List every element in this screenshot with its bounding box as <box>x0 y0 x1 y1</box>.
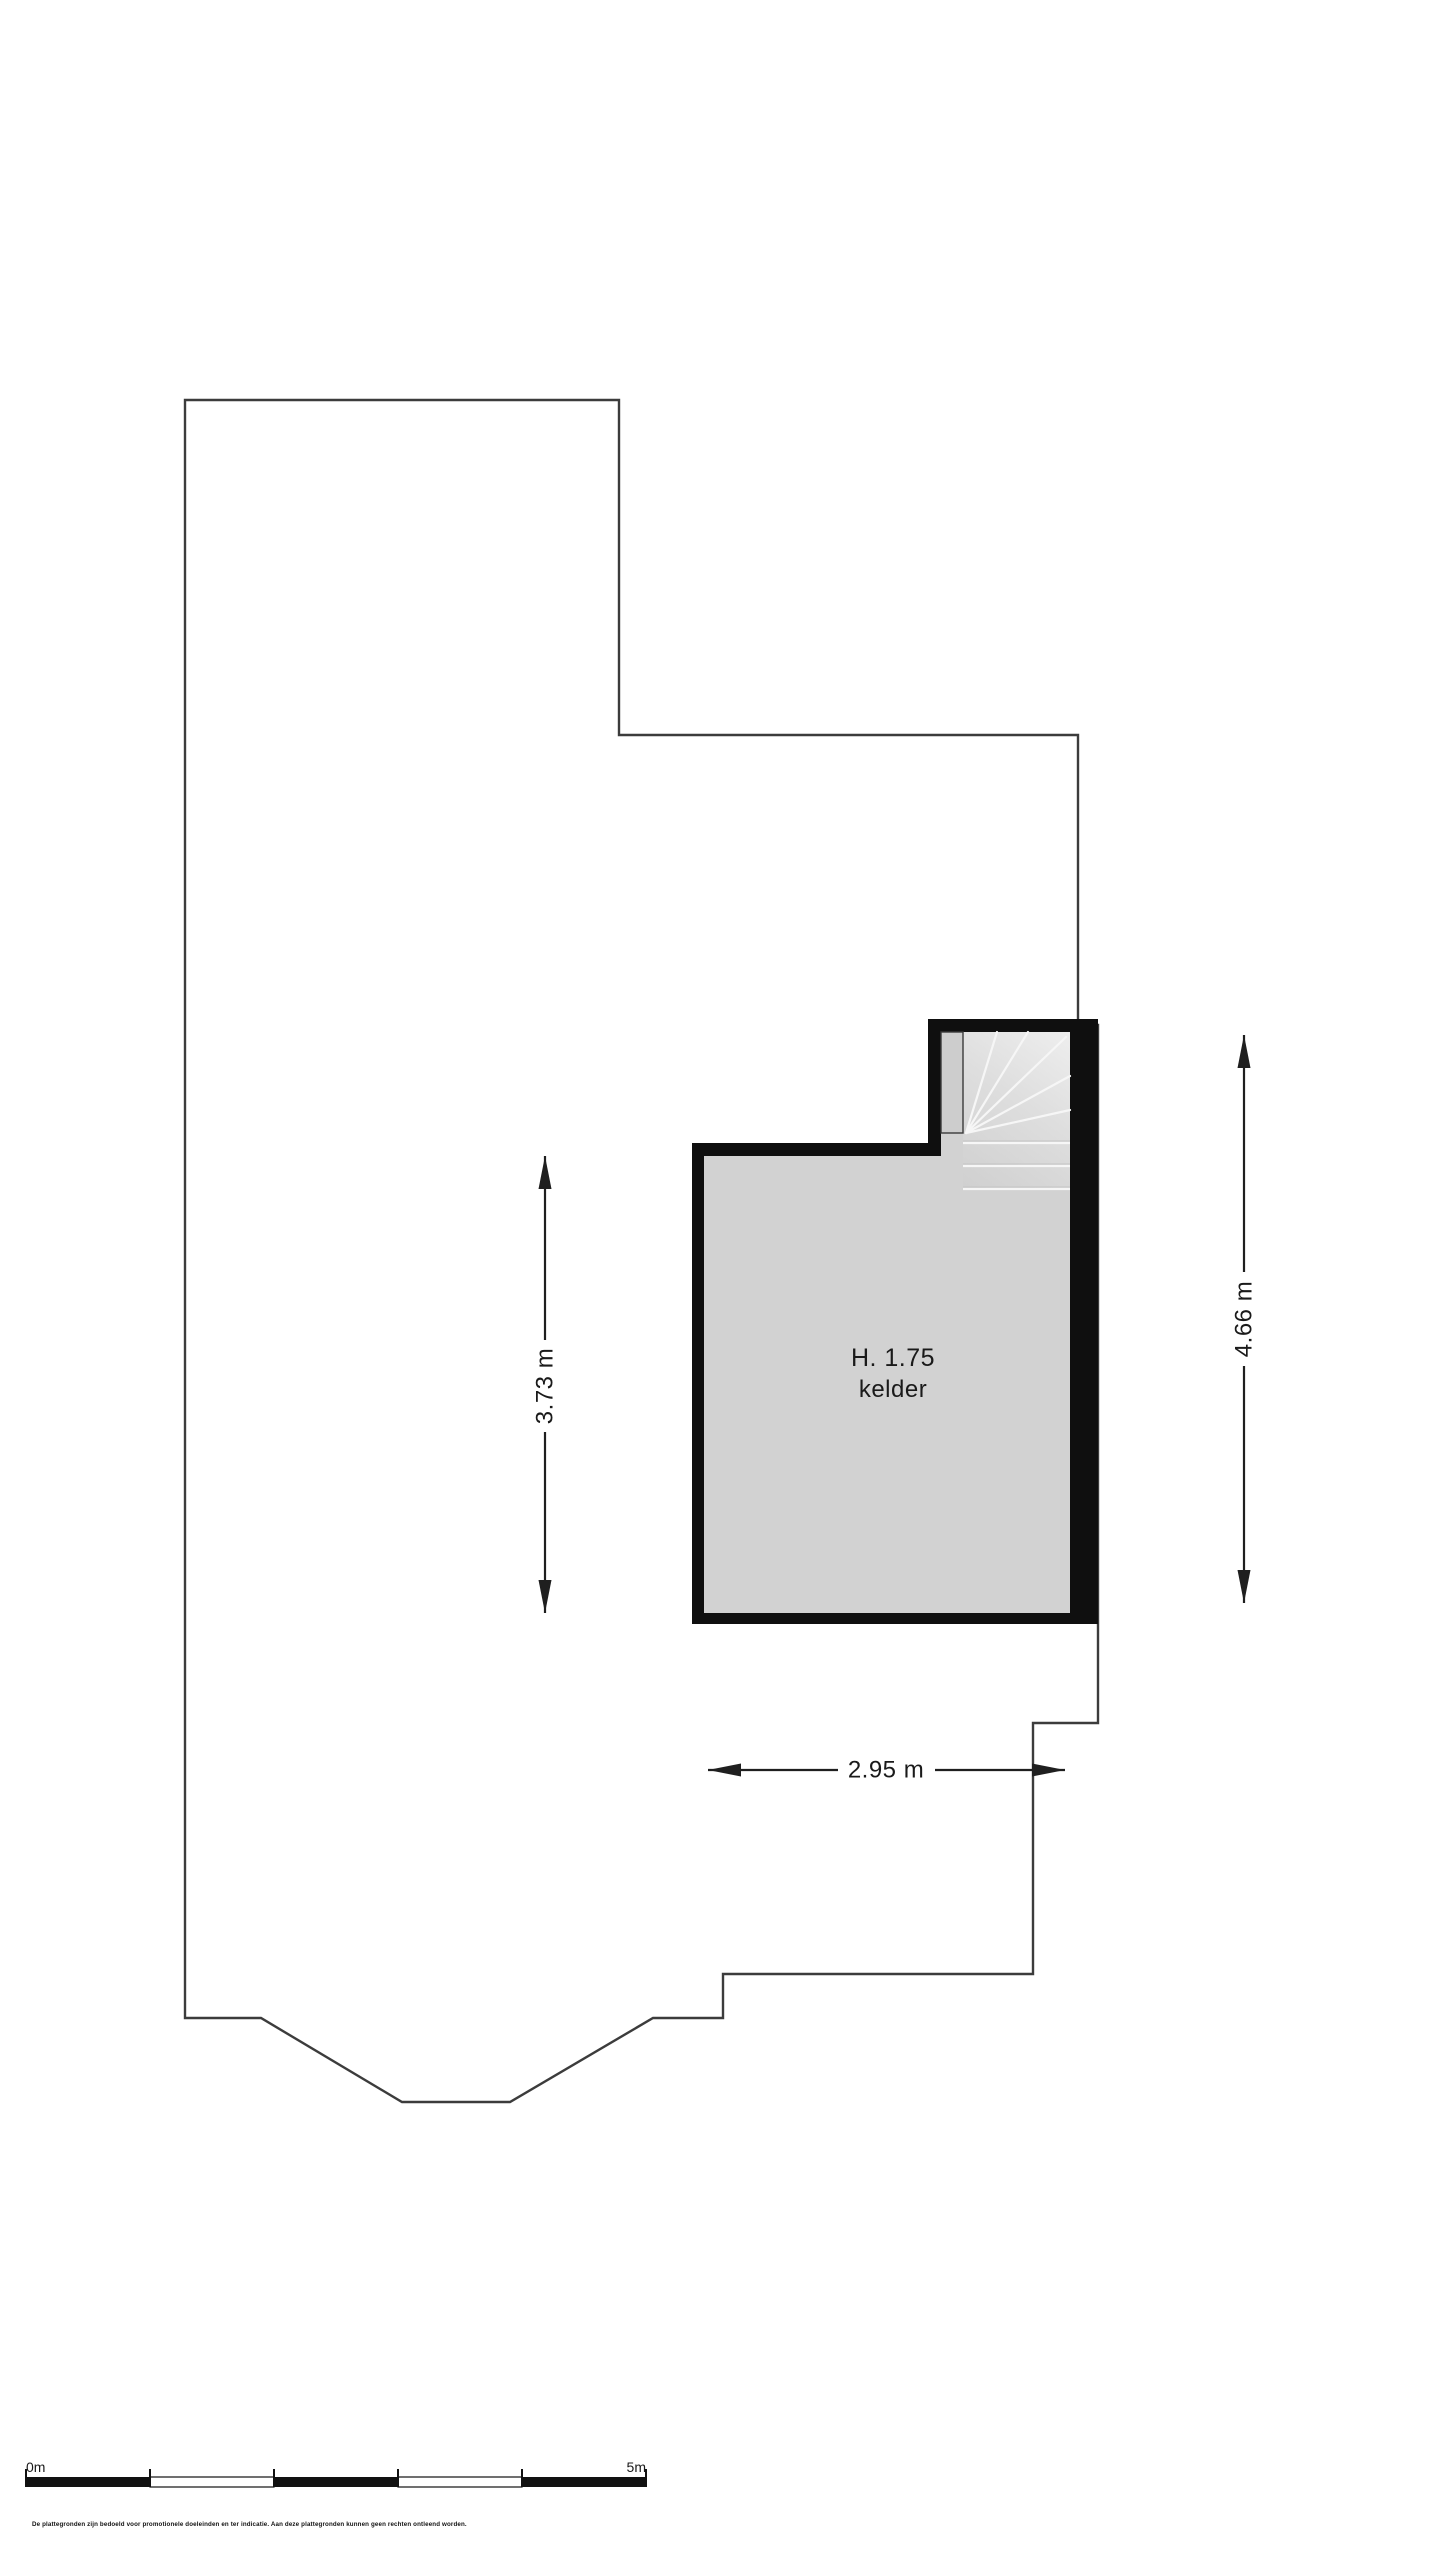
arrowhead-down <box>1238 1570 1251 1603</box>
scale-bar: 0m 5m <box>25 2459 647 2487</box>
scale-segment-black <box>522 2477 646 2487</box>
arrowhead-up <box>1238 1035 1251 1068</box>
arrowhead-left <box>708 1764 741 1777</box>
arrowhead-up <box>539 1156 552 1189</box>
arrowhead-down <box>539 1580 552 1613</box>
dimension-bottom: 2.95 m <box>708 1757 1065 1784</box>
dimension-left-label: 3.73 m <box>532 1348 559 1424</box>
dimension-right-label: 4.66 m <box>1231 1281 1258 1357</box>
floorplan-page: H. 1.75 kelder 3.73 m 4.66 m 2.95 m <box>0 0 1440 2560</box>
scale-end-label: 5m <box>627 2459 646 2475</box>
room-name-label: kelder <box>859 1376 927 1403</box>
scale-segment-black <box>26 2477 150 2487</box>
disclaimer-text: De plattegronden zijn bedoeld voor promo… <box>32 2521 467 2528</box>
kelder-room: H. 1.75 kelder <box>692 1019 1098 1624</box>
scale-start-label: 0m <box>26 2459 45 2475</box>
floorplan-canvas: H. 1.75 kelder 3.73 m 4.66 m 2.95 m <box>0 0 1440 2560</box>
stair-landing <box>941 1032 963 1133</box>
scale-segment-white <box>150 2477 274 2487</box>
scale-segment-black <box>274 2477 398 2487</box>
arrowhead-right <box>1032 1764 1065 1777</box>
dimension-right: 4.66 m <box>1231 1035 1258 1603</box>
scale-segment-white <box>398 2477 522 2487</box>
room-height-label: H. 1.75 <box>851 1344 935 1372</box>
dimension-bottom-label: 2.95 m <box>848 1757 924 1784</box>
dimension-left: 3.73 m <box>532 1156 559 1613</box>
